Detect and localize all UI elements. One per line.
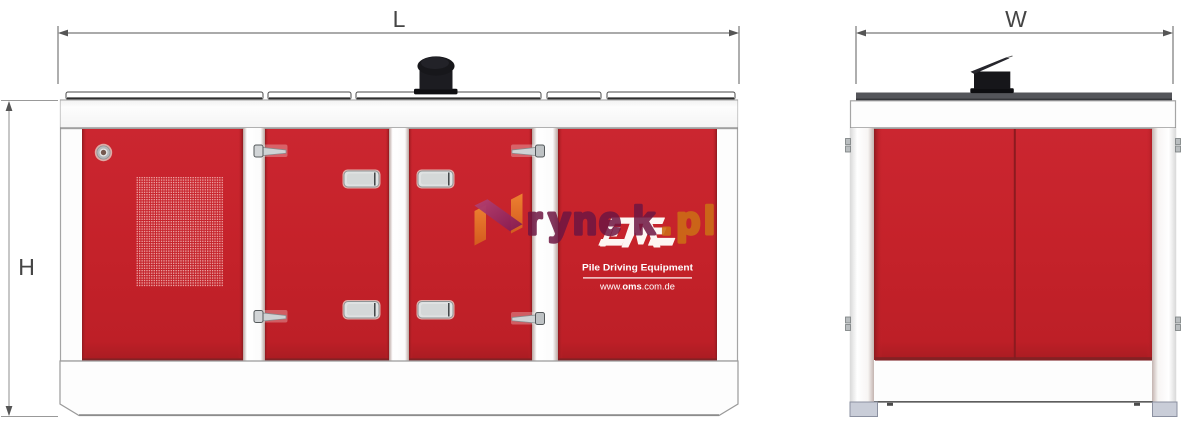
svg-text:.pl: .pl [661, 200, 715, 243]
svg-text:Pile Driving Equipment: Pile Driving Equipment [582, 263, 694, 274]
svg-text:www.oms.com.de: www.oms.com.de [599, 282, 675, 292]
svg-text:H: H [18, 254, 35, 280]
svg-text:L: L [393, 6, 406, 32]
svg-text:W: W [1005, 6, 1027, 32]
